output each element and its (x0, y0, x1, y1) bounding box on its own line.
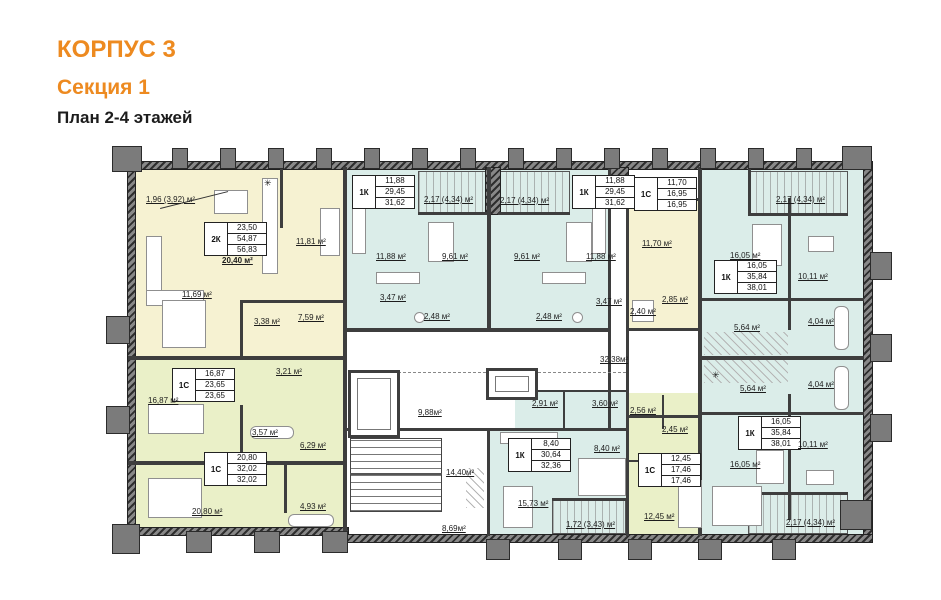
wall (280, 168, 283, 228)
corridor-area-label: 8,69м² (442, 525, 466, 534)
room-area-label: 2,45 м² (662, 426, 688, 435)
room-area-label: 3,47 м² (596, 298, 622, 307)
room-area-label: 2,56 м² (630, 407, 656, 416)
sofa (148, 404, 204, 434)
apartment-2k-table: 2К 23,50 54,87 56,83 (204, 222, 267, 256)
apartment-type-label: 1К (739, 417, 762, 449)
wall (702, 356, 864, 360)
room-area-label: 7,59 м² (298, 314, 324, 323)
total-with-balcony-value: 32,36 (532, 461, 570, 471)
room-area-label: 4,04 м² (808, 318, 834, 327)
column (628, 539, 652, 560)
wall (552, 498, 628, 501)
wall (128, 162, 135, 535)
room-area-label: 5,64 м² (740, 385, 766, 394)
room-area-label: 2,48 м² (424, 313, 450, 322)
wall (702, 298, 864, 301)
column (508, 148, 524, 169)
room-area-label: 9,61 м² (442, 253, 468, 262)
total-area-value: 54,87 (228, 234, 266, 245)
balcony-area-label: 2,17 (4,34) м² (500, 197, 549, 206)
balcony-area-label: 2,17 (4,34) м² (786, 519, 835, 528)
room-area-label: 3,60 м² (592, 400, 618, 409)
desk (806, 470, 834, 485)
room-area-label: 11,81 м² (296, 238, 326, 247)
balcony-topright (748, 171, 848, 215)
living-area-value: 16,05 (738, 261, 776, 272)
apartment-1s-table: 1С 16,87 23,65 23,65 (172, 368, 235, 402)
room-area-label: 20,40 м² (222, 257, 253, 266)
wall (343, 167, 347, 536)
balcony-area-label: 2,17 (4,34) м² (424, 196, 473, 205)
elevator-car (357, 378, 391, 430)
apartment-type-label: 1С (639, 454, 662, 486)
living-area-value: 11,88 (596, 176, 634, 187)
total-area-value: 32,02 (228, 464, 266, 475)
lobby-area-label: 9,88м² (418, 409, 442, 418)
living-area-value: 16,05 (762, 417, 800, 428)
bed (678, 480, 702, 528)
total-with-balcony-value: 31,62 (596, 198, 634, 208)
column (460, 148, 476, 169)
total-area-value: 35,84 (762, 428, 800, 439)
wall (487, 167, 491, 330)
room-area-label: 3,57 м² (252, 429, 278, 438)
column (796, 148, 812, 169)
wall (702, 412, 864, 415)
column (870, 252, 892, 280)
column (652, 148, 668, 169)
room-area-label: 4,93 м² (300, 503, 326, 512)
column (698, 539, 722, 560)
apartment-type-label: 1К (715, 261, 738, 293)
total-with-balcony-value: 56,83 (228, 245, 266, 255)
column (604, 148, 620, 169)
living-area-value: 11,88 (376, 176, 414, 187)
bathtub (834, 306, 849, 350)
sofa (146, 236, 162, 292)
room-area-label: 15,73 м² (518, 500, 548, 509)
bathtub (834, 366, 849, 410)
kitchen-counter (542, 272, 586, 284)
total-area-value: 17,46 (662, 465, 700, 476)
wall (243, 300, 345, 303)
balcony-topcenter-right (498, 171, 570, 213)
wall (345, 328, 611, 332)
vent-icon: ✳ (712, 370, 720, 381)
room-area-label: 2,85 м² (662, 296, 688, 305)
section-title: Секция 1 (57, 76, 150, 100)
room-area-label: 20,80 м² (192, 508, 222, 517)
living-area-value: 8,40 (532, 439, 570, 450)
apartment-1k-table: 1К 8,40 30,64 32,36 (508, 438, 571, 472)
total-area-value: 16,95 (658, 189, 696, 200)
balcony-bottomright (748, 494, 848, 534)
wall (788, 198, 791, 330)
elevator-shaft (486, 368, 538, 400)
room-area-label: 10,11 м² (798, 441, 828, 450)
desk (808, 236, 834, 252)
room-area-label: 12,45 м² (644, 513, 674, 522)
column (700, 148, 716, 169)
vent-icon: ✳ (264, 178, 272, 189)
wall (487, 430, 490, 536)
column (254, 531, 280, 553)
apartment-type-label: 2К (205, 223, 228, 255)
room-area-label: 2,91 м² (532, 400, 558, 409)
bed (320, 208, 340, 256)
apartment-type-label: 1С (635, 178, 658, 210)
balcony-topcenter-left (418, 171, 490, 213)
room-area-label: 3,47 м² (380, 294, 406, 303)
apartment-1k-table: 1К 11,88 29,45 31,62 (572, 175, 635, 209)
living-area-value: 23,50 (228, 223, 266, 234)
wall (662, 395, 664, 429)
column (842, 146, 872, 170)
wall (748, 168, 751, 216)
room-area-label: 5,64 м² (734, 324, 760, 333)
washing-machine (572, 312, 583, 323)
room-area-label: 11,88 м² (586, 253, 616, 262)
room-area-label: 10,11 м² (798, 273, 828, 282)
apartment-type-label: 1С (205, 453, 228, 485)
total-with-balcony-value: 16,95 (658, 200, 696, 210)
stair-rail (350, 473, 442, 475)
apartment-1s-table: 1С 12,45 17,46 17,46 (638, 453, 701, 487)
wall (498, 212, 570, 215)
corridor-area-label: 32,38м² (600, 356, 628, 365)
total-area-value: 30,64 (532, 450, 570, 461)
room-area-label: 11,69 м² (182, 291, 212, 300)
total-with-balcony-value: 31,62 (376, 198, 414, 208)
column (316, 148, 332, 169)
building-title: КОРПУС 3 (57, 36, 176, 64)
wall (128, 528, 348, 535)
room-area-label: 3,21 м² (276, 368, 302, 377)
wall (748, 492, 848, 495)
apartment-type-label: 1К (573, 176, 596, 208)
room-area-label: 8,40 м² (594, 445, 620, 454)
wall (240, 300, 243, 358)
room-area-label: 4,04 м² (808, 381, 834, 390)
column (412, 148, 428, 169)
stairs-area-label: 14,40м² (446, 469, 474, 478)
wall (284, 463, 287, 513)
living-area-value: 16,87 (196, 369, 234, 380)
room-area-label: 9,61 м² (514, 253, 540, 262)
room-area-label: 2,40 м² (630, 308, 656, 317)
column (172, 148, 188, 169)
apartment-1k-table: 1К 16,05 35,84 38,01 (714, 260, 777, 294)
column (556, 148, 572, 169)
apartment-type-label: 1К (509, 439, 532, 471)
column (772, 539, 796, 560)
apartment-1s-table: 1С 11,70 16,95 16,95 (634, 177, 697, 211)
wall (128, 356, 347, 360)
room-area-label: 16,05 м² (730, 461, 760, 470)
total-with-balcony-value: 17,46 (662, 476, 700, 486)
total-area-value: 23,65 (196, 380, 234, 391)
floor-plan-page: КОРПУС 3 Секция 1 План 2-4 этажей (0, 0, 941, 600)
stairs-flight (350, 438, 442, 512)
living-area-value: 11,70 (658, 178, 696, 189)
column (112, 146, 142, 172)
wall (748, 213, 848, 216)
bathtub (288, 514, 334, 527)
apartment-type-label: 1К (353, 176, 376, 208)
wall (626, 198, 629, 536)
wall (418, 212, 490, 215)
balcony-area-label: 1,72 (3,43) м² (566, 521, 615, 530)
column (268, 148, 284, 169)
bed (162, 300, 206, 348)
column (558, 539, 582, 560)
elevator-shaft (348, 370, 400, 438)
living-area-value: 12,45 (662, 454, 700, 465)
bed (712, 486, 762, 526)
room-area-label: 11,70 м² (642, 240, 672, 249)
column (486, 539, 510, 560)
apartment-1s-table: 1С 20,80 32,02 32,02 (204, 452, 267, 486)
kitchen-floor-hatch (704, 332, 788, 355)
total-area-value: 35,84 (738, 272, 776, 283)
apartment-1k-table: 1К 16,05 35,84 38,01 (738, 416, 801, 450)
total-area-value: 29,45 (376, 187, 414, 198)
room-area-label: 3,38 м² (254, 318, 280, 327)
room-area-label: 11,88 м² (376, 253, 406, 262)
wall (563, 390, 565, 428)
elevator-car (495, 376, 529, 392)
balcony-area-label: 2,17 (4,34) м² (776, 196, 825, 205)
room-area-label: 16,87 м² (148, 397, 178, 406)
balcony-area-label: 1,96 (3,92) м² (146, 196, 195, 205)
column (220, 148, 236, 169)
apartment-1k-table: 1К 11,88 29,45 31,62 (352, 175, 415, 209)
room-area-label: 2,48 м² (536, 313, 562, 322)
room-area-label: 16,05 м² (730, 252, 760, 261)
column (186, 531, 212, 553)
column (840, 500, 872, 530)
column (322, 531, 348, 553)
wall (628, 328, 700, 331)
kitchen-counter (376, 272, 420, 284)
bed (578, 458, 626, 496)
total-with-balcony-value: 23,65 (196, 391, 234, 401)
room-area-label: 6,29 м² (300, 442, 326, 451)
column (870, 414, 892, 442)
column (748, 148, 764, 169)
column (106, 316, 130, 344)
total-with-balcony-value: 38,01 (738, 283, 776, 293)
total-with-balcony-value: 38,01 (762, 439, 800, 449)
column (364, 148, 380, 169)
column (870, 334, 892, 362)
plan-subtitle: План 2-4 этажей (57, 108, 192, 128)
column (112, 524, 140, 554)
total-with-balcony-value: 32,02 (228, 475, 266, 485)
column (106, 406, 130, 434)
total-area-value: 29,45 (596, 187, 634, 198)
living-area-value: 20,80 (228, 453, 266, 464)
